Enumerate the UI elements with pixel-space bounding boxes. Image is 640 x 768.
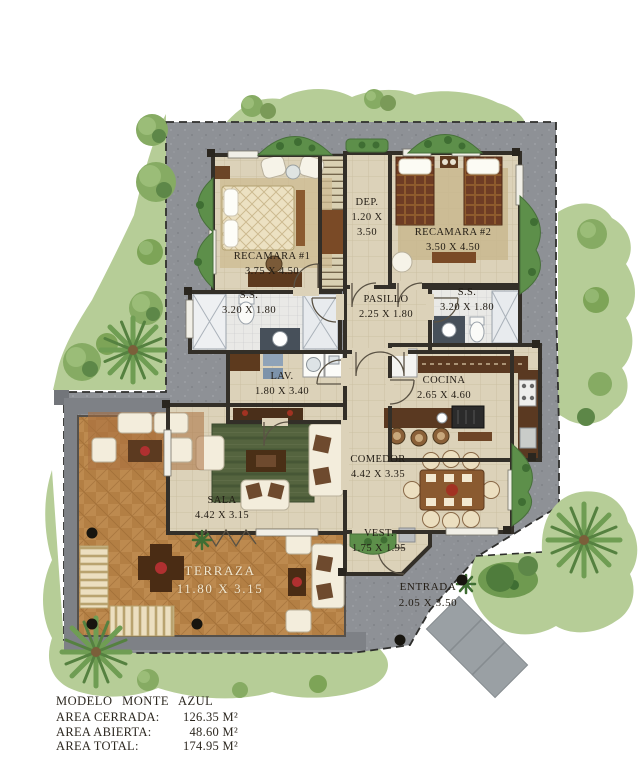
bush — [137, 239, 163, 265]
bush — [136, 162, 176, 202]
palm-tree — [548, 504, 620, 576]
bush — [63, 343, 101, 381]
area-cerrada-row: AREA CERRADA: 126.35 M² — [56, 710, 238, 725]
room-label-dep: DEP. 1.20 X 3.50 — [347, 196, 387, 241]
room-label-sala: SALA 4.42 X 3.15 — [175, 494, 269, 524]
bush — [588, 372, 612, 396]
closet-dresser — [322, 210, 343, 254]
palm-tree — [101, 318, 165, 382]
plan-title: MODELO MONTE AZUL — [56, 694, 238, 709]
bush — [577, 219, 607, 249]
bush — [380, 95, 396, 111]
room-label-lav: LAV. 1.80 X 3.40 — [235, 370, 329, 400]
area-total-row: AREA TOTAL: 174.95 M² — [56, 739, 238, 754]
potted-plant — [193, 531, 211, 549]
bush — [583, 287, 609, 313]
bush — [136, 114, 168, 146]
room-label-entrada: ENTRADA 2.05 X 3.50 — [380, 580, 476, 611]
bush — [309, 675, 327, 693]
palm-tree — [62, 618, 130, 686]
bush — [577, 408, 595, 426]
room-label-recamara1: RECAMARA #1 3.75 X 4.50 — [217, 250, 327, 280]
plan-legend: MODELO MONTE AZUL AREA CERRADA: 126.35 M… — [56, 694, 238, 754]
room-label-pasillo: PASILLO 2.25 X 1.80 — [339, 293, 433, 323]
area-abierta-row: AREA ABIERTA: 48.60 M² — [56, 725, 238, 740]
room-label-ss-right: S.S. 3.20 X 1.80 — [420, 286, 514, 316]
room-label-comedor: COMEDOR 4.42 X 3.35 — [331, 453, 425, 483]
bush — [137, 669, 159, 691]
room-label-cocina: COCINA 2.65 X 4.60 — [397, 374, 491, 404]
room-label-terraza: TERRAZA 11.80 X 3.15 — [155, 562, 285, 599]
room-label-vest: VEST. 1.75 X 1.95 — [332, 527, 426, 557]
room-label-recamara2: RECAMARA #2 3.50 X 4.50 — [398, 226, 508, 256]
room-label-ss-left: S.S. 3.20 X 1.80 — [202, 289, 296, 319]
bush — [241, 95, 263, 117]
floor-plan-canvas: RECAMARA #1 3.75 X 4.50 DEP. 1.20 X 3.50… — [0, 0, 640, 768]
bush — [260, 103, 276, 119]
